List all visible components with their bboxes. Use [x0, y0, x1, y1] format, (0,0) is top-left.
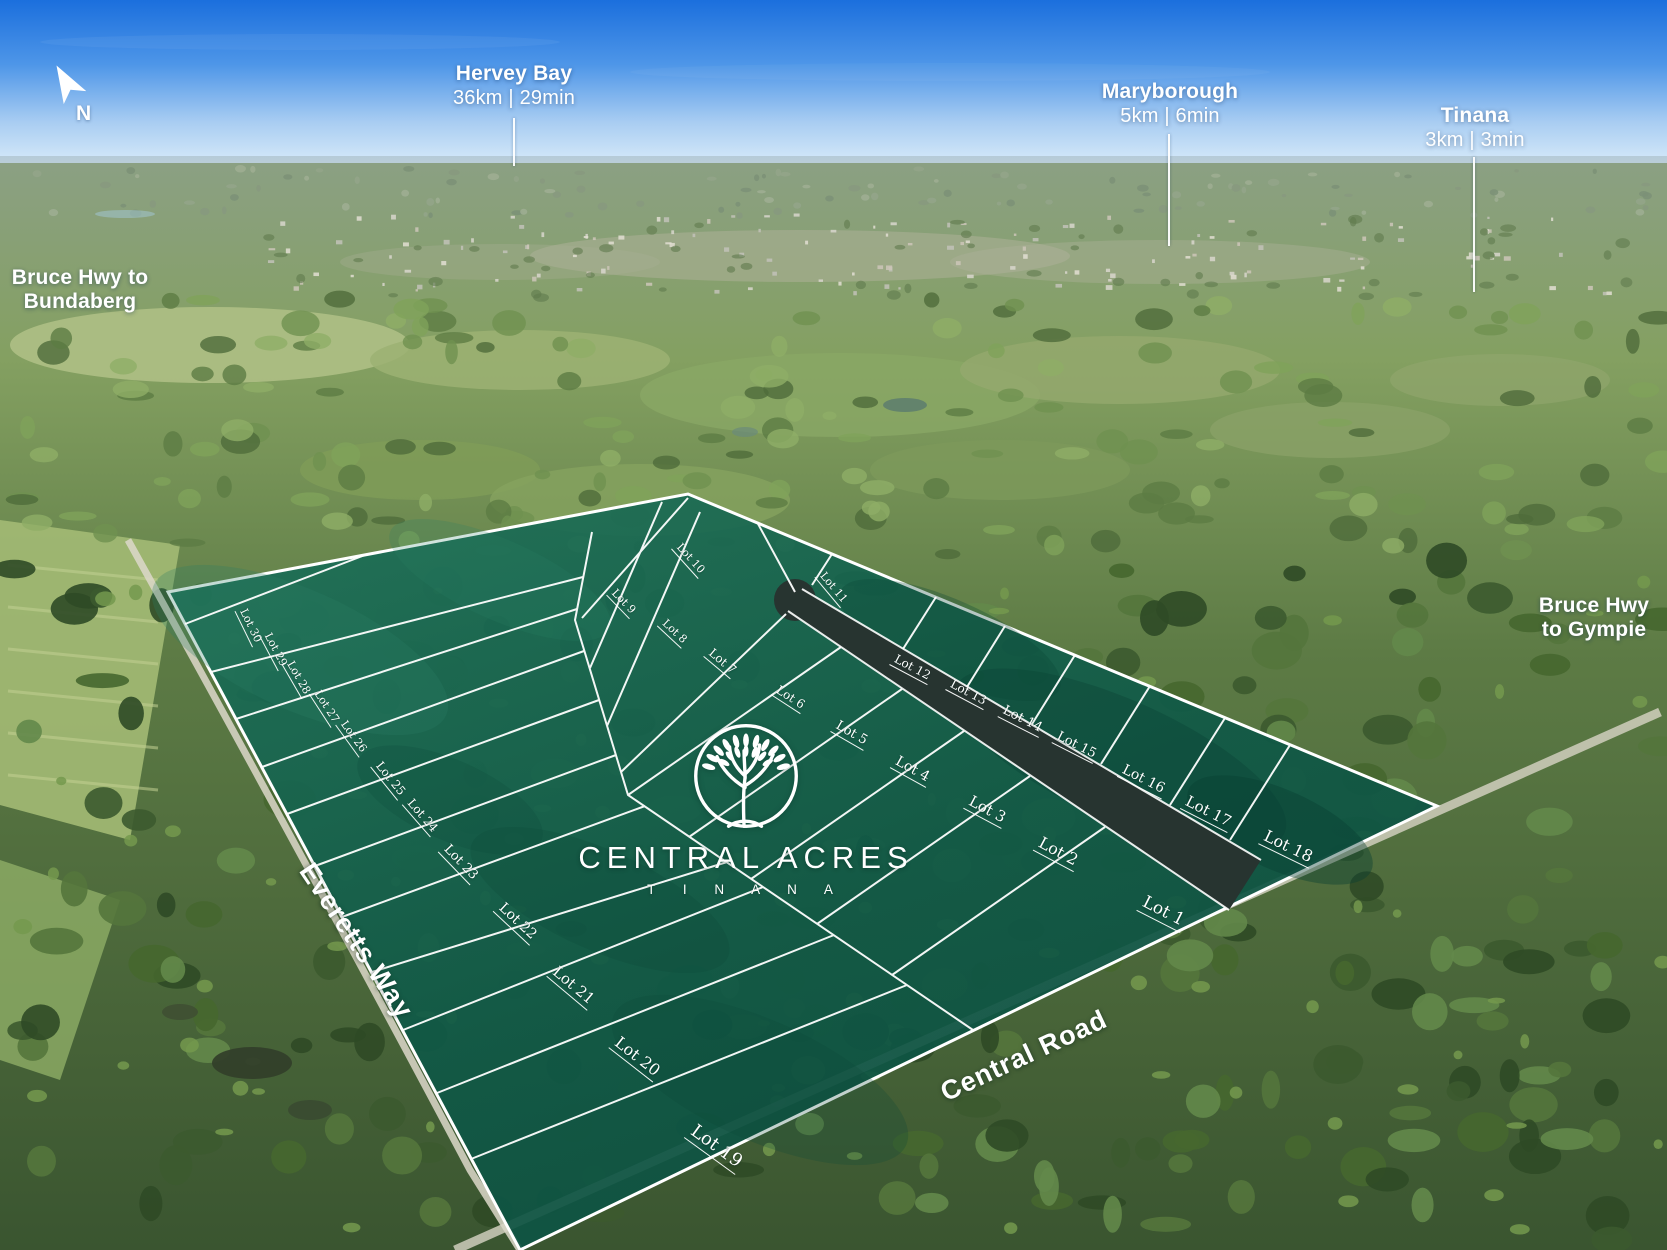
aerial-scene: N CENTRAL ACRES T I N A N A Hervey Bay36: [0, 0, 1667, 1250]
aerial-photo: [0, 0, 1667, 1250]
sky: [0, 0, 1667, 170]
